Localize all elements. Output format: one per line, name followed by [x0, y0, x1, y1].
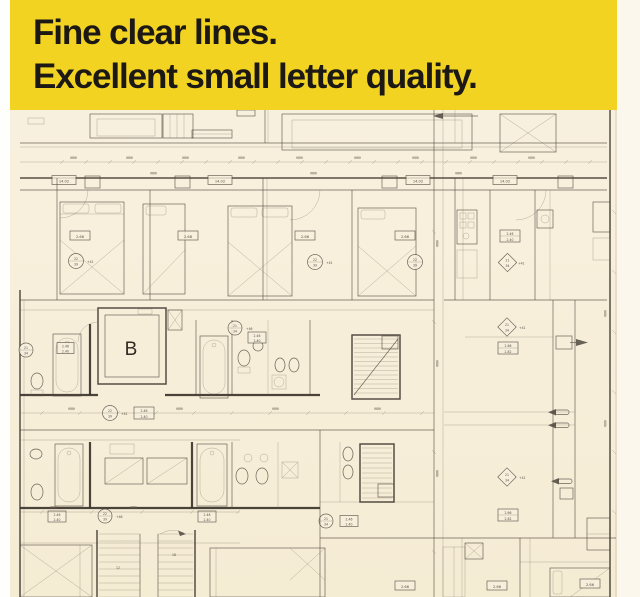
counter	[443, 547, 465, 597]
window-label: 14.02	[52, 176, 76, 185]
svg-text:22: 22	[413, 258, 417, 262]
svg-text:2.46: 2.46	[507, 232, 514, 236]
svg-text:22: 22	[108, 409, 112, 413]
svg-text:21: 21	[506, 259, 510, 263]
svg-text:34: 34	[24, 352, 28, 356]
window-label: 14.02	[208, 176, 232, 185]
wall-pier	[560, 488, 573, 499]
svg-text:2.46: 2.46	[62, 344, 69, 348]
top-dimension-line	[20, 160, 607, 164]
circle-tag: 21 34	[19, 343, 33, 357]
svg-text:2.40: 2.40	[62, 350, 69, 354]
svg-text:+41: +41	[519, 476, 526, 480]
svg-text:39: 39	[313, 264, 317, 268]
elevator-label: B	[125, 339, 138, 360]
circle-tag: 22 39 +46	[98, 509, 123, 523]
svg-text:+46: +46	[116, 515, 123, 519]
room-area-label: 2.66	[70, 231, 90, 240]
svg-text:2.82: 2.82	[505, 350, 512, 354]
leader-arrow	[570, 339, 588, 346]
duct-shaft	[168, 310, 182, 330]
svg-text:+46: +46	[246, 327, 253, 331]
svg-text:34: 34	[324, 523, 328, 527]
wardrobes	[105, 444, 187, 484]
svg-text:34: 34	[505, 479, 509, 483]
page-left-margin	[0, 0, 10, 597]
stacked-area-label: 2.46 2.40	[340, 516, 358, 527]
duct-shaft	[465, 543, 483, 559]
circle-tag: 22 39	[408, 255, 423, 270]
svg-text:+41: +41	[87, 260, 94, 264]
stacked-area-label: 2.46 2.40	[500, 230, 520, 242]
stacked-area-label: 2.66 2.82	[498, 342, 518, 354]
svg-text:21: 21	[324, 517, 328, 521]
svg-text:22: 22	[74, 257, 78, 261]
svg-text:+41: +41	[518, 262, 525, 266]
svg-text:14.02: 14.02	[59, 179, 69, 183]
staircase-bottom: 12 18	[97, 530, 195, 597]
svg-text:2.66: 2.66	[505, 511, 512, 515]
circle-tag: 22 39 +41	[103, 406, 128, 421]
furniture	[587, 518, 610, 550]
leader-arrow	[551, 478, 572, 485]
room-area-label: 2.66	[580, 579, 600, 588]
elevator-shaft: B	[98, 308, 166, 384]
headline-line-1: Fine clear lines.	[33, 13, 277, 53]
stacked-area-label: 2.66 2.82	[498, 509, 518, 521]
room-area-label: 2.66	[395, 231, 415, 240]
svg-text:2.40: 2.40	[346, 523, 353, 527]
diamond-tag: 21 34 +41	[498, 318, 526, 336]
exterior-wall: 14.02 14.02 14.02 14.02	[20, 176, 607, 191]
circle-tag: 21 34	[319, 514, 333, 528]
svg-text:2.40: 2.40	[54, 518, 61, 522]
svg-text:34: 34	[506, 264, 510, 268]
bathroom-lower-left	[30, 442, 90, 508]
svg-text:2.66: 2.66	[76, 235, 85, 239]
svg-text:2.82: 2.82	[505, 517, 512, 521]
svg-text:2.46: 2.46	[254, 334, 261, 338]
bed	[358, 208, 416, 296]
bathroom-left: 2.46 2.40 21 34	[19, 322, 98, 396]
svg-text:34: 34	[505, 329, 509, 333]
stair-count-label: 12	[116, 566, 120, 570]
svg-text:39: 39	[103, 518, 107, 522]
svg-text:2.66: 2.66	[505, 344, 512, 348]
stair-count-label: 18	[172, 553, 176, 557]
headline-banner: Fine clear lines. Excellent small letter…	[10, 0, 617, 110]
headline-line-2: Excellent small letter quality.	[33, 57, 477, 97]
stacked-area-label: 2.46 2.40	[198, 511, 216, 522]
svg-text:14.02: 14.02	[413, 179, 423, 183]
svg-text:22: 22	[313, 258, 317, 262]
svg-text:2.46: 2.46	[346, 517, 353, 521]
bed	[60, 202, 124, 294]
staircase-small	[360, 444, 394, 502]
room-area-label: 2.68	[178, 231, 198, 240]
svg-text:2.40: 2.40	[141, 415, 148, 419]
svg-text:2.46: 2.46	[204, 513, 211, 517]
labels-lower-band: 2.46 2.40 22 39 +46 2.46 2.40	[48, 468, 573, 528]
diamond-tag: 21 34 +41	[498, 253, 524, 271]
svg-text:21: 21	[505, 323, 509, 327]
tiny-text-smudges	[50, 157, 606, 509]
hall-right: 21 34 +41 2.66 2.82	[444, 300, 588, 538]
page-right-margin	[617, 0, 640, 597]
bathroom-center: 2.46 2.40 21 34 +46	[165, 320, 320, 398]
svg-text:+41: +41	[326, 261, 333, 265]
svg-text:21: 21	[505, 473, 509, 477]
lower-middle-band: 2.46 2.40 22 39 +46 2.46 2.40	[20, 430, 573, 528]
circle-tag: 22 39 +41	[69, 254, 94, 269]
bed	[143, 204, 185, 294]
svg-text:39: 39	[108, 415, 112, 419]
diamond-tag: 21 34 +41	[498, 468, 526, 486]
svg-text:39: 39	[74, 263, 78, 267]
window-label: 14.02	[493, 176, 517, 185]
outer-walls	[20, 110, 616, 597]
stacked-area-label: 2.46 2.40	[48, 511, 66, 522]
svg-text:21: 21	[24, 346, 28, 350]
svg-text:14.02: 14.02	[500, 179, 510, 183]
bed	[210, 548, 325, 597]
room-area-label: 2.66	[295, 231, 315, 240]
svg-text:2.46: 2.46	[141, 409, 148, 413]
svg-text:2.46: 2.46	[54, 513, 61, 517]
svg-text:21: 21	[233, 324, 237, 328]
svg-text:14.02: 14.02	[215, 179, 225, 183]
svg-text:39: 39	[413, 264, 417, 268]
stacked-area-label: 2.46 2.40	[57, 343, 74, 354]
top-balcony-strip	[20, 110, 607, 178]
staircase-mid	[352, 335, 400, 399]
bathroom-lower-center	[192, 442, 298, 508]
floor-plan-drawing: 14.02 14.02 14.02 14.02	[10, 110, 617, 597]
svg-text:22: 22	[103, 512, 107, 516]
svg-text:2.66: 2.66	[493, 585, 502, 589]
svg-text:2.40: 2.40	[254, 339, 261, 343]
room-area-label: 2.66	[487, 581, 507, 590]
svg-text:2.40: 2.40	[507, 238, 514, 242]
cabinet	[593, 202, 610, 260]
kitchen-unit	[457, 210, 477, 278]
circle-tag: 22 39 +41	[308, 255, 333, 270]
mid-dimension-line: 22 39 +41 2.46 2.40	[20, 406, 434, 421]
kitchen-sink	[537, 210, 553, 228]
svg-text:2.66: 2.66	[586, 583, 595, 587]
bed	[20, 545, 92, 597]
leader-arrow	[548, 409, 569, 416]
floor-plan-paper: 14.02 14.02 14.02 14.02	[10, 110, 617, 597]
top-bedrooms: 2.66 2.68 2.66 2.66 22 39 +41	[57, 178, 610, 300]
window-label: 14.02	[406, 176, 430, 185]
svg-text:2.68: 2.68	[184, 235, 193, 239]
svg-text:2.66: 2.66	[401, 585, 410, 589]
print-sample-page: Fine clear lines. Excellent small letter…	[0, 0, 640, 597]
svg-text:2.66: 2.66	[401, 235, 410, 239]
svg-text:34: 34	[233, 330, 237, 334]
svg-text:+41: +41	[519, 326, 526, 330]
stacked-area-label: 2.46 2.40	[134, 407, 154, 419]
svg-text:2.66: 2.66	[301, 235, 310, 239]
leader-arrow	[548, 422, 569, 429]
stacked-area-label: 2.46 2.40	[248, 332, 266, 343]
svg-text:+41: +41	[121, 412, 128, 416]
svg-text:2.40: 2.40	[204, 518, 211, 522]
room-area-label: 2.66	[395, 581, 415, 590]
bed	[228, 206, 292, 296]
